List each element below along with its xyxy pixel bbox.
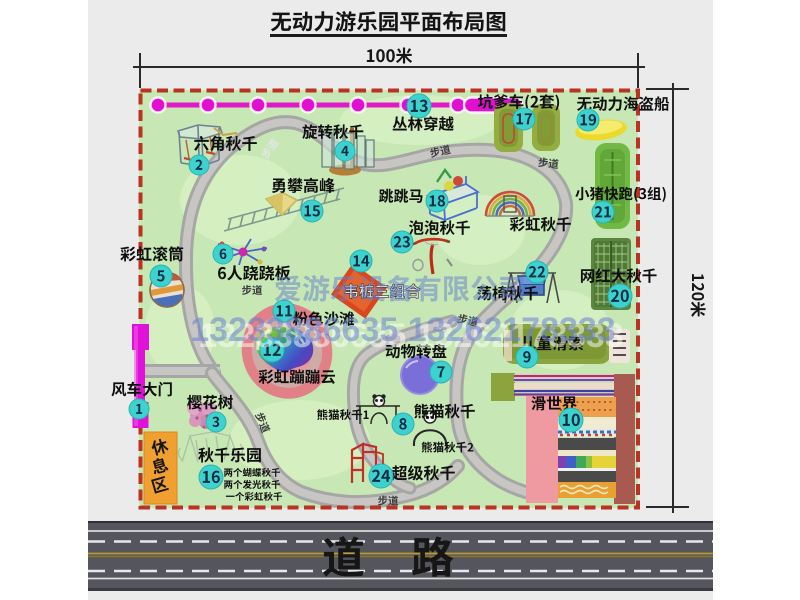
svg-text:13233886635 13262178333: 13233886635 13262178333 [190,311,615,349]
